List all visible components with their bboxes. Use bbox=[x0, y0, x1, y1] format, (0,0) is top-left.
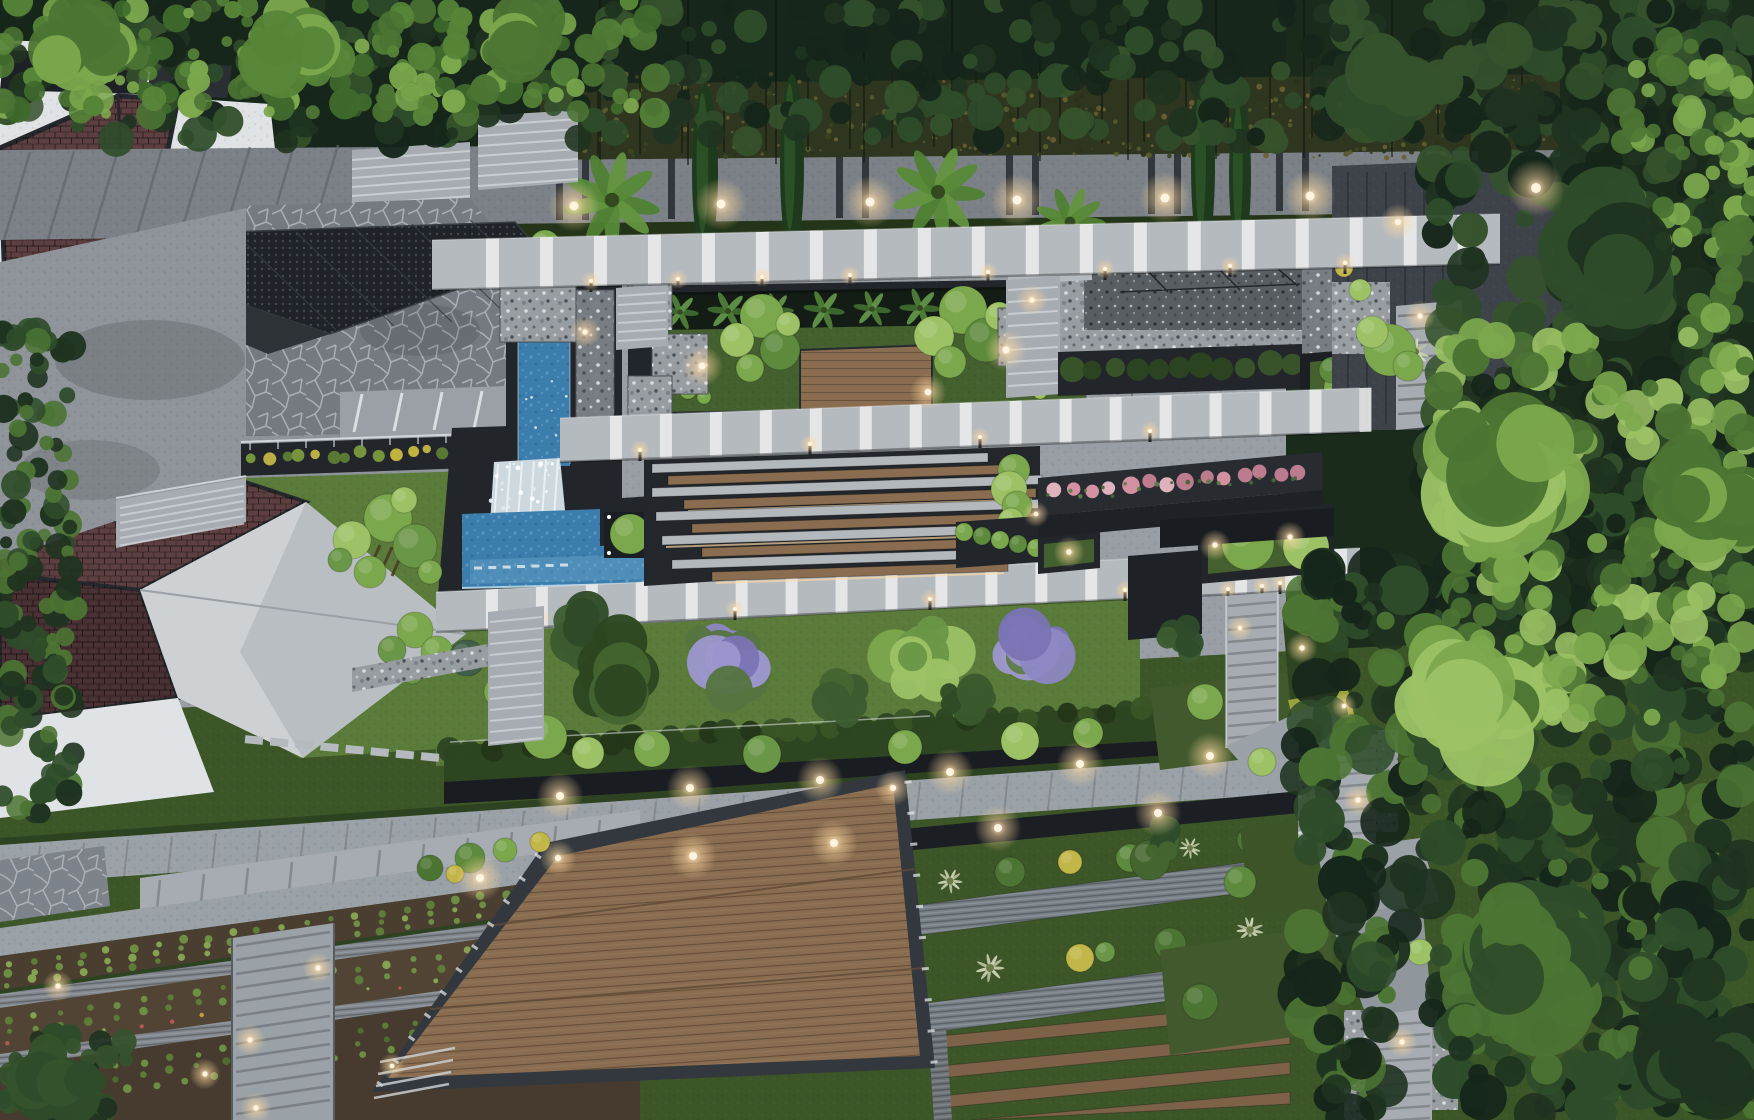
aerial-garden-render bbox=[0, 0, 1754, 1120]
scene-canvas bbox=[0, 0, 1754, 1120]
